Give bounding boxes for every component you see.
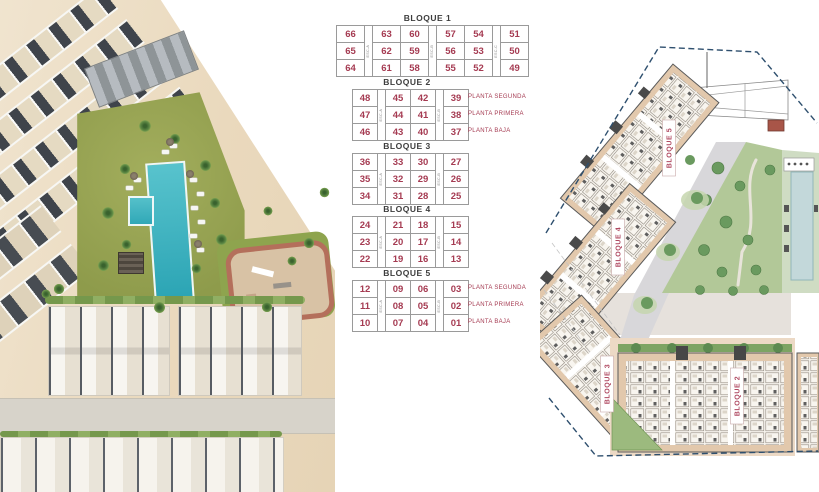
unit-cell: 30 <box>411 154 436 171</box>
sun-lounger <box>190 234 197 238</box>
sun-lounger <box>162 150 169 154</box>
unit-cell: 37 <box>444 124 469 141</box>
unit-table: 48ESC-A4542ESC-B394744413846434037 <box>352 89 469 141</box>
unit-cell: 45 <box>386 90 411 107</box>
unit-cell: 65 <box>337 43 365 60</box>
unit-cell: 15 <box>444 217 469 234</box>
unit-cell: 57 <box>437 26 465 43</box>
block-title: BLOQUE 3 <box>352 141 462 151</box>
unit-table: 12ESC-A0906ESC-B031108050210070401 <box>352 280 469 332</box>
unit-cell: 10 <box>353 315 378 332</box>
unit-cell: 60 <box>401 26 429 43</box>
street <box>0 398 335 434</box>
plan-label-bloque-3: BLOQUE 3 <box>605 364 612 405</box>
block-title: BLOQUE 1 <box>336 13 519 23</box>
townhouse-row-left <box>48 306 170 396</box>
palm-tree <box>100 205 116 221</box>
unit-cell: 52 <box>465 60 493 77</box>
palm-tree <box>52 282 66 296</box>
unit-cell: 55 <box>437 60 465 77</box>
sun-lounger <box>190 178 197 182</box>
site-plan-page: BLOQUE 166ESC-A6360ESC-B5754ESC-C5165625… <box>0 0 819 492</box>
unit-cell: 36 <box>353 154 378 171</box>
unit-cell: 41 <box>411 107 436 124</box>
unit-cell: 24 <box>353 217 378 234</box>
block-title: BLOQUE 5 <box>352 268 462 278</box>
unit-cell: 54 <box>465 26 493 43</box>
unit-cell: 48 <box>353 90 378 107</box>
palm-tree <box>40 288 52 300</box>
unit-cell: 51 <box>501 26 529 43</box>
palm-tree <box>260 300 274 314</box>
parasol <box>194 240 202 248</box>
unit-cell: 40 <box>411 124 436 141</box>
building-bloque-1 <box>797 353 819 452</box>
unit-cell: 25 <box>444 188 469 205</box>
unit-cell: 18 <box>411 217 436 234</box>
plan-label-bloque-4: BLOQUE 4 <box>616 227 623 268</box>
unit-cell: 13 <box>444 251 469 268</box>
unit-cell: 31 <box>386 188 411 205</box>
unit-cell: 28 <box>411 188 436 205</box>
unit-table: 36ESC-A3330ESC-B273532292634312825 <box>352 153 469 205</box>
unit-cell: 05 <box>411 298 436 315</box>
block-title: BLOQUE 2 <box>352 77 462 87</box>
palm-tree <box>318 186 331 199</box>
plan-pool <box>791 172 813 280</box>
unit-cell: 32 <box>386 171 411 188</box>
unit-cell: 03 <box>444 281 469 298</box>
sun-lounger <box>197 248 204 252</box>
unit-cell: 58 <box>401 60 429 77</box>
unit-cell: 66 <box>337 26 365 43</box>
unit-cell: 11 <box>353 298 378 315</box>
unit-table: 24ESC-A2118ESC-B152320171422191613 <box>352 216 469 268</box>
unit-cell: 62 <box>373 43 401 60</box>
plan-label-bloque-2: BLOQUE 2 <box>735 376 742 417</box>
unit-cell: 16 <box>411 251 436 268</box>
unit-cell: 04 <box>411 315 436 332</box>
palm-tree <box>198 158 213 173</box>
unit-cell: 19 <box>386 251 411 268</box>
unit-cell: 22 <box>353 251 378 268</box>
unit-cell: 21 <box>386 217 411 234</box>
palm-tree <box>214 232 229 247</box>
palm-tree <box>302 236 316 250</box>
plan-label-bloque-5: BLOQUE 5 <box>667 128 674 169</box>
sun-lounger <box>197 192 204 196</box>
unit-cell: 02 <box>444 298 469 315</box>
unit-cell: 39 <box>444 90 469 107</box>
stair-cell: ESC-B <box>436 154 444 205</box>
unit-cell: 42 <box>411 90 436 107</box>
unit-cell: 09 <box>386 281 411 298</box>
unit-cell: 33 <box>386 154 411 171</box>
stair-cell: ESC-B <box>429 26 437 77</box>
block-group-4: BLOQUE 424ESC-A2118ESC-B1523201714221916… <box>352 204 462 268</box>
stair-cell: ESC-A <box>378 90 386 141</box>
unit-cell: 34 <box>353 188 378 205</box>
block-group-2: BLOQUE 248ESC-A4542ESC-B3947444138464340… <box>352 77 462 141</box>
block-group-1: BLOQUE 166ESC-A6360ESC-B5754ESC-C5165625… <box>336 13 519 77</box>
block-title: BLOQUE 4 <box>352 204 462 214</box>
unit-cell: 23 <box>353 234 378 251</box>
unit-cell: 50 <box>501 43 529 60</box>
stair-cell: ESC-B <box>436 217 444 268</box>
stair-cell: ESC-B <box>436 90 444 141</box>
palm-tree <box>190 262 203 275</box>
unit-cell: 49 <box>501 60 529 77</box>
unit-cell: 20 <box>386 234 411 251</box>
unit-cell: 59 <box>401 43 429 60</box>
kids-pool <box>128 196 154 226</box>
sun-lounger <box>198 220 205 224</box>
unit-cell: 44 <box>386 107 411 124</box>
parasol <box>186 170 194 178</box>
unit-cell: 64 <box>337 60 365 77</box>
floor-plan: BLOQUE 5 BLOQUE 4 BLOQUE 3 BLOQUE 2 <box>540 0 819 492</box>
unit-cell: 56 <box>437 43 465 60</box>
stair-cell: ESC-C <box>493 26 501 77</box>
block-group-3: BLOQUE 336ESC-A3330ESC-B2735322926343128… <box>352 141 462 205</box>
palm-tree <box>137 118 153 134</box>
stair-cell: ESC-A <box>378 281 386 332</box>
unit-cell: 12 <box>353 281 378 298</box>
palm-tree <box>152 300 167 315</box>
unit-cell: 17 <box>411 234 436 251</box>
unit-cell: 53 <box>465 43 493 60</box>
block-group-5: BLOQUE 512ESC-A0906ESC-B0311080502100704… <box>352 268 462 332</box>
play-equipment <box>251 266 274 277</box>
utility-structure <box>768 120 784 131</box>
sun-lounger <box>126 186 133 190</box>
townhouse-row-right <box>178 306 302 396</box>
unit-cell: 61 <box>373 60 401 77</box>
unit-table: 66ESC-A6360ESC-B5754ESC-C516562595653506… <box>336 25 529 77</box>
unit-cell: 08 <box>386 298 411 315</box>
stair-cell: ESC-A <box>365 26 373 77</box>
play-equipment <box>273 282 291 289</box>
unit-cell: 01 <box>444 315 469 332</box>
unit-cell: 27 <box>444 154 469 171</box>
palm-tree <box>286 255 298 267</box>
unit-cell: 47 <box>353 107 378 124</box>
unit-cell: 46 <box>353 124 378 141</box>
parasol <box>166 138 174 146</box>
unit-cell: 43 <box>386 124 411 141</box>
parasol <box>130 172 138 180</box>
unit-cell: 14 <box>444 234 469 251</box>
pergola <box>118 252 144 274</box>
unit-cell: 06 <box>411 281 436 298</box>
stair-cell: ESC-A <box>378 154 386 205</box>
unit-cell: 63 <box>373 26 401 43</box>
palm-tree <box>262 205 274 217</box>
stair-cell: ESC-B <box>436 281 444 332</box>
unit-cell: 38 <box>444 107 469 124</box>
aerial-render <box>0 0 335 492</box>
palm-tree <box>120 238 133 251</box>
palm-tree <box>96 258 111 273</box>
sun-lounger <box>191 206 198 210</box>
palm-tree <box>208 196 222 210</box>
unit-cell: 35 <box>353 171 378 188</box>
unit-cell: 07 <box>386 315 411 332</box>
unit-cell: 29 <box>411 171 436 188</box>
stair-cell: ESC-A <box>378 217 386 268</box>
unit-cell: 26 <box>444 171 469 188</box>
townhouse-row-bottom <box>0 437 284 492</box>
